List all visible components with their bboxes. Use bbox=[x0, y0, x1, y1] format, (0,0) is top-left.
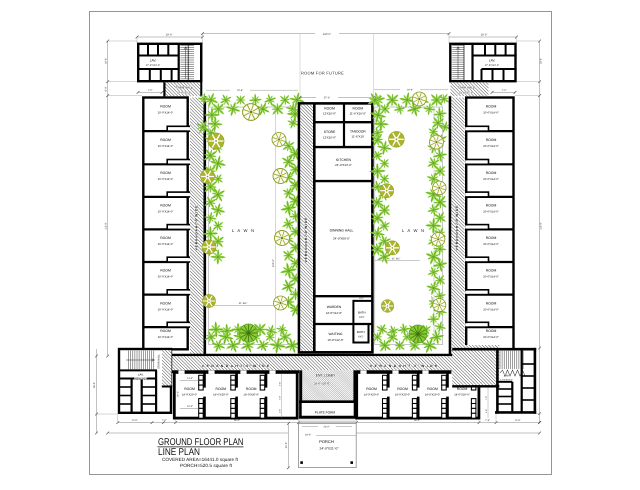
svg-text:20′-0″: 20′-0″ bbox=[177, 391, 180, 397]
svg-text:6′-0″: 6′-0″ bbox=[104, 86, 107, 91]
svg-text:LAV.: LAV. bbox=[504, 374, 510, 378]
svg-text:112′-0″: 112′-0″ bbox=[539, 222, 542, 229]
svg-text:55′-0″: 55′-0″ bbox=[414, 419, 420, 422]
svg-text:14′-0″X20′-0″: 14′-0″X20′-0″ bbox=[213, 394, 229, 397]
svg-text:7′-0″: 7′-0″ bbox=[279, 396, 282, 400]
svg-text:24′-0″X50′-0″: 24′-0″X50′-0″ bbox=[333, 237, 350, 241]
svg-text:95′-0″: 95′-0″ bbox=[234, 419, 240, 422]
svg-text:V E R A N D A H 7′-0″ W I D E: V E R A N D A H 7′-0″ W I D E bbox=[202, 364, 270, 368]
svg-text:20′-0″X14′-0″: 20′-0″X14′-0″ bbox=[158, 145, 174, 148]
svg-text:20′-0″X14′-0″: 20′-0″X14′-0″ bbox=[158, 211, 174, 214]
svg-text:ROOM: ROOM bbox=[216, 387, 227, 391]
svg-text:14′-0″X20′-0″: 14′-0″X20′-0″ bbox=[182, 394, 198, 397]
svg-text:ROOM: ROOM bbox=[160, 236, 171, 240]
svg-text:BATH: BATH bbox=[357, 330, 365, 334]
svg-text:STORE: STORE bbox=[324, 130, 336, 134]
svg-text:12′X10′-0″: 12′X10′-0″ bbox=[323, 135, 336, 139]
svg-text:6′-0″: 6′-0″ bbox=[359, 297, 364, 300]
svg-text:24′-0″X21′-0″: 24′-0″X21′-0″ bbox=[320, 447, 340, 451]
svg-text:7′-0″: 7′-0″ bbox=[162, 419, 167, 422]
svg-text:17′-6″X10′-0″: 17′-6″X10′-0″ bbox=[146, 64, 160, 67]
svg-text:ROOM: ROOM bbox=[486, 105, 497, 109]
svg-text:2′-6″: 2′-6″ bbox=[279, 409, 282, 413]
svg-text:ROOM: ROOM bbox=[486, 236, 497, 240]
svg-text:19′-6″: 19′-6″ bbox=[237, 89, 243, 92]
svg-text:V E R A N D A H 7′-0″ W I D E: V E R A N D A H 7′-0″ W I D E bbox=[194, 205, 198, 251]
svg-text:18′-0″: 18′-0″ bbox=[305, 433, 311, 436]
svg-text:ROOM: ROOM bbox=[160, 269, 171, 273]
svg-text:DINNING HALL: DINNING HALL bbox=[330, 229, 354, 233]
svg-text:24′-0″: 24′-0″ bbox=[323, 425, 329, 428]
svg-text:V E R A N D A H 7′-0″ W I D E: V E R A N D A H 7′-0″ W I D E bbox=[370, 364, 438, 368]
svg-text:24′-0″X20′-0″: 24′-0″X20′-0″ bbox=[314, 381, 330, 385]
svg-text:14′-0″X20′-0″: 14′-0″X20′-0″ bbox=[243, 394, 259, 397]
svg-text:2′-6″: 2′-6″ bbox=[279, 382, 282, 386]
svg-text:17′-6″X16′-0″: 17′-6″X16′-0″ bbox=[135, 377, 148, 380]
svg-text:20′-0″X14′-0″: 20′-0″X14′-0″ bbox=[483, 308, 499, 311]
svg-text:20′-0″X14′-0″: 20′-0″X14′-0″ bbox=[483, 336, 499, 339]
svg-text:L A W N: L A W N bbox=[402, 228, 425, 233]
svg-text:PORCH=520.5 square ft: PORCH=520.5 square ft bbox=[180, 463, 233, 468]
svg-text:17′-6″: 17′-6″ bbox=[131, 419, 137, 422]
svg-text:11′-6″X10′-0″: 11′-6″X10′-0″ bbox=[350, 111, 366, 115]
svg-text:L A W N: L A W N bbox=[232, 228, 255, 233]
svg-text:ROOM: ROOM bbox=[324, 106, 335, 110]
svg-text:17′-6″X16′-0″: 17′-6″X16′-0″ bbox=[500, 378, 513, 381]
svg-text:7′-6″: 7′-6″ bbox=[485, 419, 490, 422]
svg-text:12′X10′-0″: 12′X10′-0″ bbox=[323, 111, 336, 115]
svg-text:112′-0″: 112′-0″ bbox=[104, 222, 107, 229]
svg-text:14′-0″X20′-0″: 14′-0″X20′-0″ bbox=[425, 394, 441, 397]
svg-text:ROOM: ROOM bbox=[457, 387, 468, 391]
svg-text:V E R A N D A H 7′-0″ W I D E: V E R A N D A H 7′-0″ W I D E bbox=[304, 217, 308, 263]
svg-text:ROOM: ROOM bbox=[246, 387, 257, 391]
svg-text:ROOM: ROOM bbox=[160, 171, 171, 175]
svg-text:20′-0″X14′-0″: 20′-0″X14′-0″ bbox=[158, 336, 174, 339]
svg-text:7′-0″: 7′-0″ bbox=[148, 89, 153, 92]
svg-text:ROOM: ROOM bbox=[160, 105, 171, 109]
svg-text:12′-0″: 12′-0″ bbox=[187, 405, 193, 408]
svg-text:37′-0″: 37′-0″ bbox=[324, 96, 330, 99]
svg-text:ROOM: ROOM bbox=[160, 204, 171, 208]
svg-text:20′-0″X14′-0″: 20′-0″X14′-0″ bbox=[483, 276, 499, 279]
svg-text:COVERED AREA=16441.0 square ft: COVERED AREA=16441.0 square ft bbox=[162, 457, 239, 462]
svg-text:ROOM: ROOM bbox=[160, 301, 171, 305]
svg-text:20′-0″X14′-0″: 20′-0″X14′-0″ bbox=[158, 276, 174, 279]
svg-text:29′-0″: 29′-0″ bbox=[481, 34, 488, 37]
svg-text:10′-0″X21′-0″: 10′-0″X21′-0″ bbox=[177, 91, 191, 94]
svg-text:STAIR HALL: STAIR HALL bbox=[176, 86, 193, 90]
svg-text:17′-6″X10′-0″: 17′-6″X10′-0″ bbox=[485, 64, 499, 67]
svg-text:6′X7′: 6′X7′ bbox=[358, 336, 364, 339]
svg-text:PLATE FORM: PLATE FORM bbox=[315, 410, 335, 414]
svg-text:ROOM: ROOM bbox=[486, 269, 497, 273]
svg-text:41′-6½″: 41′-6½″ bbox=[239, 302, 248, 305]
svg-text:STAIR HALL: STAIR HALL bbox=[157, 354, 160, 369]
svg-text:20′-0″X14′-0″: 20′-0″X14′-0″ bbox=[158, 243, 174, 246]
svg-text:ROOM: ROOM bbox=[160, 329, 171, 333]
svg-text:41′-6½″: 41′-6½″ bbox=[392, 257, 401, 260]
svg-text:14′-0″X20′-0″: 14′-0″X20′-0″ bbox=[454, 394, 470, 397]
svg-text:ROOM: ROOM bbox=[427, 387, 438, 391]
svg-text:STAIR HALL: STAIR HALL bbox=[458, 86, 475, 90]
svg-text:20′-0″X14′-0″: 20′-0″X14′-0″ bbox=[158, 178, 174, 181]
svg-text:6′X7′: 6′X7′ bbox=[359, 316, 365, 319]
svg-text:14′-0″X20′-0″: 14′-0″X20′-0″ bbox=[364, 394, 380, 397]
svg-text:14′-0″X20′-0″: 14′-0″X20′-0″ bbox=[395, 394, 411, 397]
svg-text:ROOM: ROOM bbox=[486, 138, 497, 142]
svg-text:35′-0″: 35′-0″ bbox=[93, 382, 96, 388]
svg-text:LAV.: LAV. bbox=[150, 58, 157, 62]
svg-text:KITCHEN: KITCHEN bbox=[336, 158, 351, 162]
svg-text:V E R A N D A H 7′-0″ W I D E: V E R A N D A H 7′-0″ W I D E bbox=[455, 205, 459, 251]
svg-text:10′-0″X21′-0″: 10′-0″X21′-0″ bbox=[459, 91, 473, 94]
svg-text:ROOM: ROOM bbox=[486, 204, 497, 208]
svg-text:ROOM: ROOM bbox=[366, 387, 377, 391]
svg-text:ROOM: ROOM bbox=[486, 171, 497, 175]
svg-text:7′-0″: 7′-0″ bbox=[485, 396, 488, 400]
svg-text:LAV.: LAV. bbox=[489, 58, 496, 62]
svg-text:ENT. LOBBY: ENT. LOBBY bbox=[316, 373, 336, 377]
svg-text:24′-0″X14′-0″: 24′-0″X14′-0″ bbox=[335, 163, 352, 167]
svg-text:17′-6″: 17′-6″ bbox=[514, 419, 520, 422]
svg-text:BATH: BATH bbox=[358, 311, 366, 315]
svg-text:100′-0″: 100′-0″ bbox=[272, 259, 275, 267]
svg-text:16′-0″: 16′-0″ bbox=[104, 58, 107, 64]
svg-text:16′-0″X12′-0″: 16′-0″X12′-0″ bbox=[327, 338, 343, 342]
svg-text:WAITING: WAITING bbox=[329, 332, 343, 336]
svg-text:20′-0″X14′-0″: 20′-0″X14′-0″ bbox=[483, 145, 499, 148]
svg-text:ROOM: ROOM bbox=[486, 329, 497, 333]
svg-text:WARDEN: WARDEN bbox=[327, 305, 342, 309]
svg-text:190′-0″: 190′-0″ bbox=[323, 33, 331, 36]
svg-text:14′-0″: 14′-0″ bbox=[187, 377, 193, 380]
svg-text:20′-0″X14′-0″: 20′-0″X14′-0″ bbox=[483, 112, 499, 115]
svg-text:2′-6″: 2′-6″ bbox=[485, 409, 488, 413]
svg-text:16′-0″: 16′-0″ bbox=[539, 58, 542, 64]
svg-text:20′-0″X14′-0″: 20′-0″X14′-0″ bbox=[483, 178, 499, 181]
svg-text:PORCH: PORCH bbox=[319, 439, 334, 444]
svg-text:20′-0″X14′-0″: 20′-0″X14′-0″ bbox=[158, 308, 174, 311]
svg-text:LAV.: LAV. bbox=[138, 373, 144, 377]
svg-text:11′-6″X10′: 11′-6″X10′ bbox=[351, 135, 364, 139]
svg-text:20′-0″X14′-0″: 20′-0″X14′-0″ bbox=[158, 112, 174, 115]
svg-text:ROOM: ROOM bbox=[353, 106, 364, 110]
svg-text:20′-0″X14′-0″: 20′-0″X14′-0″ bbox=[483, 211, 499, 214]
svg-text:ROOM: ROOM bbox=[160, 138, 171, 142]
svg-text:ROOM: ROOM bbox=[184, 387, 195, 391]
svg-text:TANDOOR: TANDOOR bbox=[350, 129, 366, 133]
svg-text:ROOM: ROOM bbox=[486, 301, 497, 305]
svg-text:21′-0″: 21′-0″ bbox=[285, 442, 288, 448]
svg-text:ROOM FOR FUTURE: ROOM FOR FUTURE bbox=[301, 71, 344, 76]
svg-text:ROOM: ROOM bbox=[397, 387, 408, 391]
svg-text:16′-0″X12′-0″: 16′-0″X12′-0″ bbox=[326, 311, 342, 315]
svg-text:20′-0″X14′-0″: 20′-0″X14′-0″ bbox=[483, 243, 499, 246]
svg-text:7′-0″: 7′-0″ bbox=[502, 89, 507, 92]
svg-text:19′-6″: 19′-6″ bbox=[407, 89, 413, 92]
svg-text:29′-0″: 29′-0″ bbox=[166, 34, 173, 37]
